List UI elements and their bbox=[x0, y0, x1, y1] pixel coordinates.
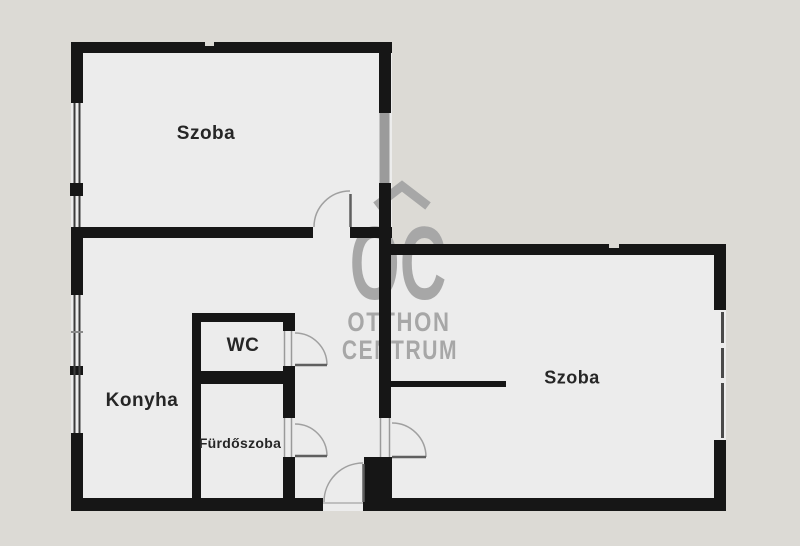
floor-plan: OC OTTHON CENTRUM bbox=[0, 0, 800, 546]
room-label-top-left: Szoba bbox=[177, 123, 235, 145]
watermark-line2: CENTRUM bbox=[342, 336, 458, 366]
room-label-right: Szoba bbox=[544, 368, 600, 389]
room-label-wc: WC bbox=[227, 335, 260, 357]
floor-plan-drawing: OC OTTHON CENTRUM bbox=[0, 0, 800, 546]
watermark-logo: OC OTTHON CENTRUM bbox=[342, 186, 458, 366]
room-label-bathroom: Fürdőszoba bbox=[199, 435, 281, 451]
watermark-line1: OTTHON bbox=[347, 308, 450, 338]
room-label-kitchen: Konyha bbox=[106, 390, 179, 412]
window-room-top-left-east bbox=[380, 113, 390, 183]
watermark-logo-text: OC bbox=[350, 206, 447, 321]
